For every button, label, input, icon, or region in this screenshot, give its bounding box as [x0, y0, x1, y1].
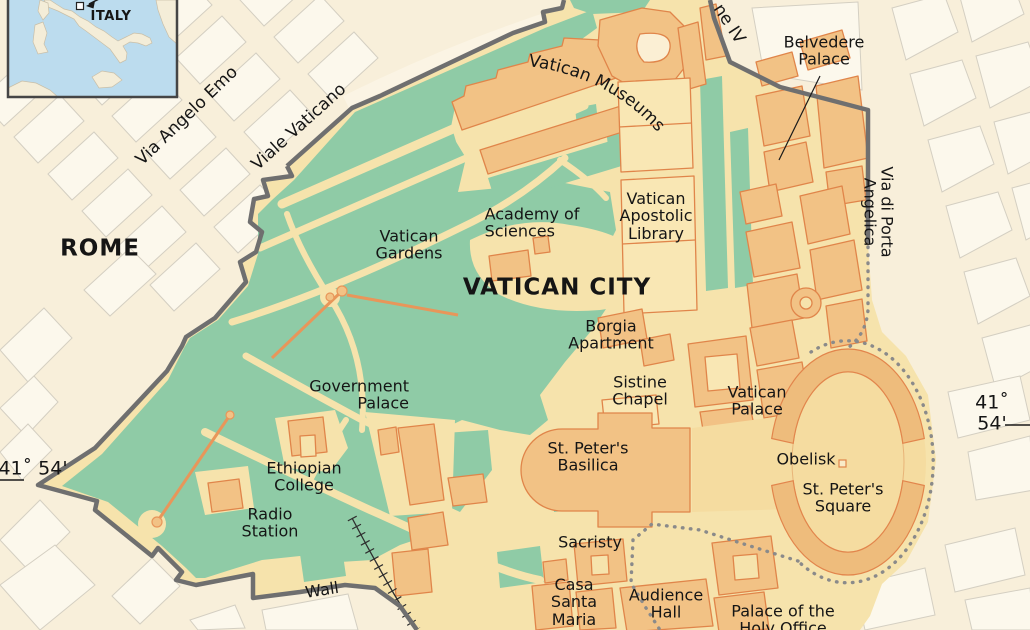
radio-station-building: [208, 479, 243, 512]
inset-map-italy: [8, 0, 177, 97]
vatican-city-map: Vatican Museums ITALY ROME VATICAN CITY …: [0, 0, 1030, 630]
rome-location-marker: [77, 3, 84, 10]
map-canvas: Vatican Museums: [0, 0, 1030, 630]
academy-building: [489, 250, 531, 281]
obelisk-marker: [839, 460, 846, 467]
